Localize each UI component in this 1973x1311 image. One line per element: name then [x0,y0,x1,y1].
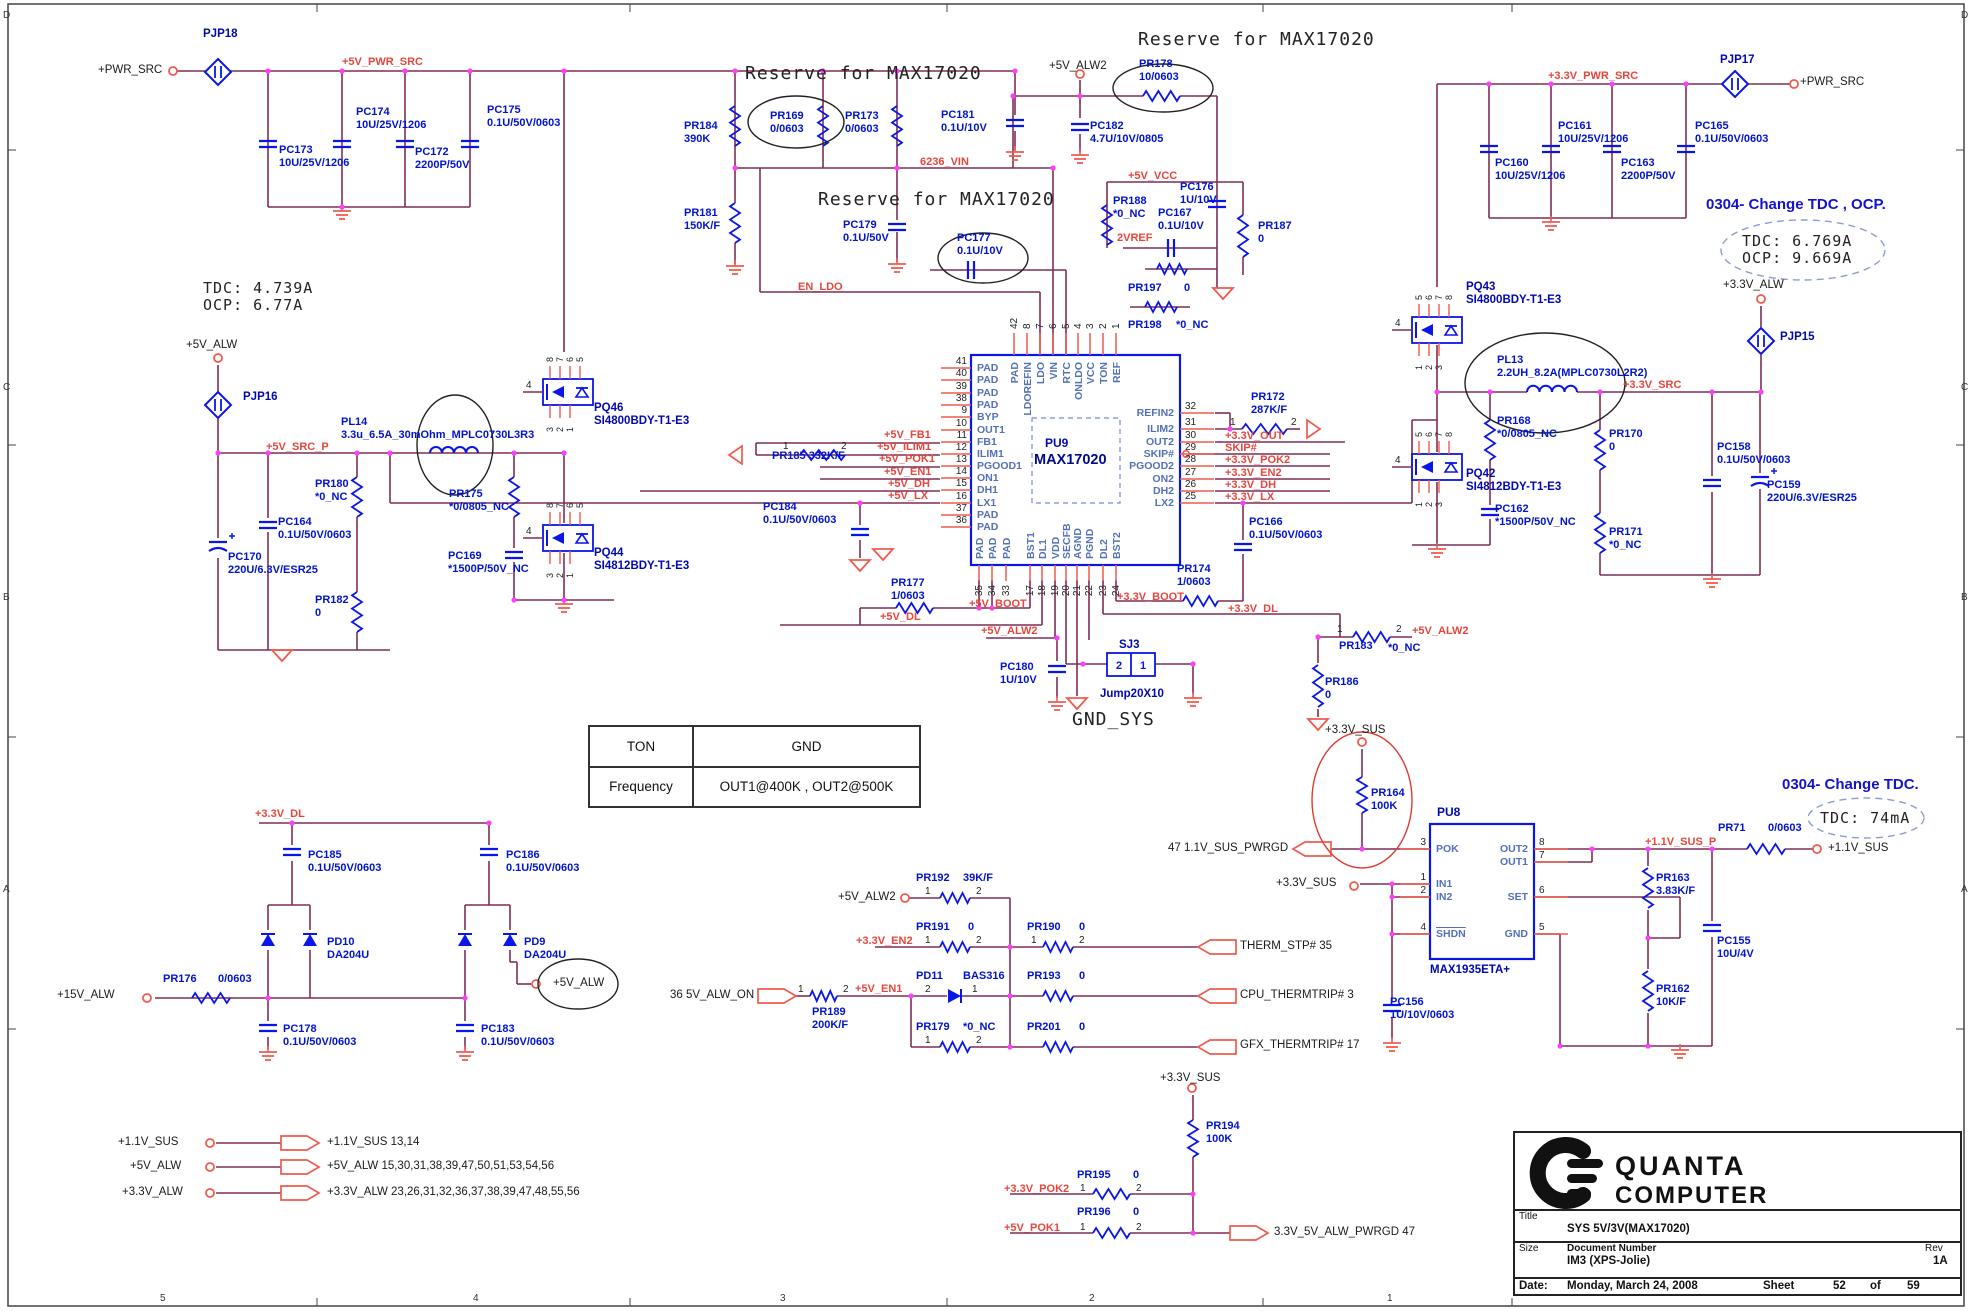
pin-number: 7 [555,503,565,508]
pin-name: BST1 [1025,532,1037,559]
junction-dot [1007,993,1012,998]
pin-name: BST2 [1111,532,1123,559]
diode-icon [458,934,472,946]
junction-dot [1709,846,1714,851]
junction-dot [1315,634,1320,639]
pin-number: 5 [575,503,585,508]
junction-dot [1012,68,1017,73]
tb-divider [1515,1209,1960,1211]
brand: QUANTA COMPUTER [1615,1151,1768,1210]
resistor [1143,91,1180,101]
resistor [1157,264,1187,274]
resistor [1145,302,1177,312]
port-arrow-left-icon [1198,989,1236,1003]
pin-number: 4 [1395,318,1401,329]
pin-number: 5 [1414,295,1424,300]
port-circle-icon [1358,738,1366,746]
junction-dot [265,68,270,73]
pin-number: 6 [1424,295,1434,300]
junction-dot [561,68,566,73]
pin-number: 3 [1434,365,1444,370]
pin-number: 7 [1035,323,1046,329]
resistor [1093,1228,1130,1238]
sheet-border [8,4,1964,1306]
jumper-diamond-icon [205,59,231,85]
junction-dot [1077,93,1082,98]
pin-name: DL1 [1037,539,1049,559]
junction-dot [1389,894,1394,899]
resistor [1043,942,1073,952]
annotation-ellipse [1721,220,1885,280]
doc-number-label: Document Number [1567,1243,1656,1254]
diode-icon [261,934,275,946]
pin-number: 2 [1424,502,1434,507]
resistor [1357,777,1367,813]
pin-number: 42 [1009,317,1020,329]
resistor [352,477,362,517]
diode-icon [503,934,517,946]
junction-dot [215,450,220,455]
junction-dot [511,597,516,602]
schematic-canvas: 876532148765321456781234567812342142PAD8… [0,0,1973,1311]
annotation-ellipse [1113,64,1213,112]
mosfet-diode-icon [576,388,588,397]
resistor [1102,205,1112,245]
annotation-ellipse [417,395,493,495]
pin-number: 1 [1414,365,1424,370]
table-cell-frequency: Frequency [589,767,693,808]
inductor-icon [1527,386,1577,392]
junction-dot [1683,81,1688,86]
mosfet-diode-icon [1445,463,1457,472]
pin-number: 1 [565,573,575,578]
annotation-ellipse [938,233,1028,283]
pin-name: PAD [987,537,999,559]
pin-number: 2 [555,427,565,432]
pin-number: 34 [987,585,998,597]
pin-number: 8 [1444,432,1454,437]
pin-name: PAD [974,537,986,559]
pin-name: AGND [1072,528,1084,559]
junction-dot [402,68,407,73]
ground-triangle-icon [1213,288,1233,299]
pin-name: VCC [1085,362,1097,385]
arrow-right-icon [1307,420,1320,438]
resistor [940,942,970,952]
junction-dot [1597,389,1602,394]
junction-dot [1240,500,1245,505]
resistor [1242,424,1287,434]
pin-number: 1 [1111,323,1122,329]
junction-dot [1010,93,1015,98]
pin-number: 18 [1037,585,1048,597]
resistor [1595,513,1605,553]
rev-value: 1A [1933,1255,1948,1267]
date-value: Monday, March 24, 2008 [1567,1280,1698,1292]
junction-dot [1709,389,1714,394]
pin-number: 5 [1414,432,1424,437]
pin-number: 22 [1084,585,1095,597]
pin-name: DL2 [1098,539,1110,559]
diode-icon [303,934,317,946]
pin-number: 7 [1434,432,1444,437]
junction-dot [265,450,270,455]
junction-dot [908,993,913,998]
junction-dot [1389,931,1394,936]
port-circle-icon [214,354,222,362]
resistor [1238,215,1248,257]
pin-number: 6 [1048,323,1059,329]
junction-dot [1007,1044,1012,1049]
resistor [1485,420,1495,460]
port-circle-icon [1076,70,1084,78]
inductor-icon [430,447,478,453]
title-label: Title [1519,1211,1538,1222]
pin-number: 3 [1434,502,1444,507]
port-arrow-left-icon [1293,842,1331,856]
pin-name: PAD [1009,362,1021,384]
port-circle-icon [1757,295,1765,303]
resistor [896,603,933,613]
junction-dot [1359,846,1364,851]
port-circle-icon [1350,882,1358,890]
resistor [1595,430,1605,470]
junction-dot [289,820,294,825]
port-circle-icon [1790,80,1798,88]
frequency-table: TON GND Frequency OUT1@400K , OUT2@500K [588,725,921,808]
pin-number: 4 [1073,323,1084,329]
ground-triangle-icon [850,560,870,571]
table-header-ton: TON [589,726,693,767]
pin-name: TON [1098,362,1110,384]
pin-number: 3 [545,427,555,432]
port-arrow-left-icon [1198,940,1236,954]
port-arrow-right-icon [281,1186,319,1200]
pin-name: PAD [1001,537,1013,559]
pin-number: 17 [1025,585,1036,597]
pin-number: 4 [1395,455,1401,466]
junction-dot [511,450,516,455]
junction-dot [1609,81,1614,86]
junction-dot [1190,1191,1195,1196]
junction-dot [732,165,737,170]
junction-dot [1645,846,1650,851]
junction-dot [894,165,899,170]
pin-name: LDOREFIN [1022,362,1034,416]
junction-dot [1486,81,1491,86]
junction-dot [1190,661,1195,666]
junction-dot [339,204,344,209]
pin-number: 6 [1424,432,1434,437]
pin-number: 35 [974,585,985,597]
resistor [1043,1042,1073,1052]
junction-dot [1050,165,1055,170]
resistor [940,1042,970,1052]
sheet-label: Sheet [1763,1280,1794,1292]
date-label: Date: [1519,1280,1548,1292]
junction-dot [354,450,359,455]
table-header-gnd: GND [693,726,920,767]
mosfet-arrow-icon [552,386,564,398]
size-label: Size [1519,1243,1538,1254]
ground-triangle-icon [1067,698,1087,709]
junction-dot [1548,81,1553,86]
ground-triangle-icon [1308,719,1328,730]
junction-dot [467,68,472,73]
quanta-logo [1521,1137,1611,1209]
pin-number: 8 [545,357,555,362]
resistor [940,893,970,903]
resistor [1043,991,1073,1001]
junction-dot [1007,944,1012,949]
sj-pin: 2 [1116,660,1122,672]
pin-number: 20 [1061,585,1072,597]
ic-inner-dash [1032,418,1120,503]
resistor [800,450,845,460]
pin-number: 2 [1098,323,1109,329]
resistor [1313,665,1323,707]
junction-dot [1190,1230,1195,1235]
mosfet-arrow-icon [1421,324,1433,336]
pin-number: 1 [1414,502,1424,507]
annotation-ellipse [1808,798,1924,838]
brand-line2: COMPUTER [1615,1182,1768,1210]
junction-dot [1389,881,1394,886]
pin-number: 33 [1001,585,1012,597]
pin-number: 8 [1444,295,1454,300]
junction-dot [561,597,566,602]
mosfet-diode-icon [576,534,588,543]
table-cell-out: OUT1@400K , OUT2@500K [693,767,920,808]
port-circle-icon [206,1189,214,1197]
resistor [509,477,519,517]
arrow-left-icon [729,446,742,464]
junction-dot [462,995,467,1000]
pin-number: 2 [1424,365,1434,370]
annotation-ellipse [1465,333,1625,433]
pin-name: VIN [1048,362,1060,380]
ground-triangle-icon [272,650,292,661]
junction-dot [857,500,862,505]
junction-dot [732,68,737,73]
pin-name: PGND [1084,528,1096,559]
pin-number: 7 [1434,295,1444,300]
resistor [730,203,740,243]
port-circle-icon [169,67,177,75]
pin-number: 5 [1061,323,1072,329]
port-circle-icon [1188,1084,1196,1092]
resistor [1643,868,1653,908]
port-arrow-right-icon [281,1136,319,1150]
pin-number: 4 [526,526,532,537]
doc-number: IM3 (XPS-Jolie) [1567,1255,1650,1267]
ground-triangle-icon [873,549,893,560]
port-circle-icon [206,1163,214,1171]
port-circle-icon [143,994,151,1002]
diode-icon [948,989,961,1003]
annotation-ellipse [538,959,618,1009]
junction-dot [1557,1043,1562,1048]
pin-number: 3 [545,573,555,578]
capacitor-pol [1751,483,1769,486]
junction-dot [1645,1043,1650,1048]
junction-dot [1758,389,1763,394]
pin-number: 21 [1072,585,1083,597]
pin-name: ONLDO [1073,362,1085,400]
junction-dot [339,68,344,73]
pin-number: 6 [565,357,575,362]
mosfet-arrow-icon [552,532,564,544]
pin-number: 24 [1111,585,1122,597]
schematic-sheet: 876532148765321456781234567812342142PAD8… [0,0,1973,1311]
jumper-diamond-icon [205,392,231,418]
resistor [1188,1120,1198,1157]
resistor [1643,971,1653,1011]
junction-dot [1645,935,1650,940]
sheet-number: 52 [1833,1280,1846,1292]
capacitor-pol [209,548,227,551]
junction-dot [486,820,491,825]
port-arrow-left-icon [1198,1040,1236,1054]
pin-number: 8 [545,503,555,508]
junction-dot [387,450,392,455]
pin-number: 6 [565,503,575,508]
pin-number: 1 [565,427,575,432]
tb-divider [1515,1277,1960,1279]
junction-dot [1054,635,1059,640]
pin-number: 8 [1022,323,1033,329]
resistor [1747,844,1785,854]
port-circle-icon [206,1139,214,1147]
resistor [1353,632,1390,642]
pin-name: LDO [1035,362,1047,384]
resistor [192,993,230,1003]
junction-dot [1487,389,1492,394]
resistor [818,106,828,146]
sj-pin: 1 [1140,660,1146,672]
brand-line1: QUANTA [1615,1151,1768,1182]
sheet-title: SYS 5V/3V(MAX17020) [1567,1223,1690,1235]
junction-dot [976,605,981,610]
resistor [1093,1189,1130,1199]
annotation-ellipse [748,96,844,148]
pin-name: RTC [1061,362,1073,384]
pin-number: 7 [555,357,565,362]
rev-label: Rev [1925,1243,1943,1254]
junction-dot [1227,426,1232,431]
of-label: of [1870,1280,1881,1292]
pin-number: 4 [526,380,532,391]
port-circle-icon [901,894,909,902]
junction-dot [820,68,825,73]
pin-number: 23 [1098,585,1109,597]
resistor [730,106,740,146]
ic-pu8 [1430,824,1534,959]
port-circle-icon [1813,845,1821,853]
mosfet-diode-icon [1445,326,1457,335]
resistor [352,592,362,632]
junction-dot [989,605,994,610]
junction-dot [1434,389,1439,394]
resistor [892,106,902,146]
pin-number: 2 [555,573,565,578]
title-block: QUANTA COMPUTER Title SYS 5V/3V(MAX17020… [1513,1131,1962,1296]
junction-dot [1589,846,1594,851]
jumper-diamond-icon [1722,71,1748,97]
resistor [1183,596,1218,606]
port-arrow-right-icon [1230,1226,1268,1240]
pin-name: REF [1111,361,1123,383]
pin-number: 5 [575,357,585,362]
pin-number: 19 [1050,585,1061,597]
resistor [810,991,837,1001]
sheet-total: 59 [1907,1280,1920,1292]
pin-number: 3 [1085,323,1096,329]
port-arrow-right-icon [758,989,796,1003]
junction-dot [894,68,899,73]
junction-dot [265,995,270,1000]
junction-dot [1080,661,1085,666]
mosfet-arrow-icon [1421,461,1433,473]
jumper-diamond-icon [1748,328,1774,354]
junction-dot [561,450,566,455]
port-arrow-right-icon [281,1160,319,1174]
